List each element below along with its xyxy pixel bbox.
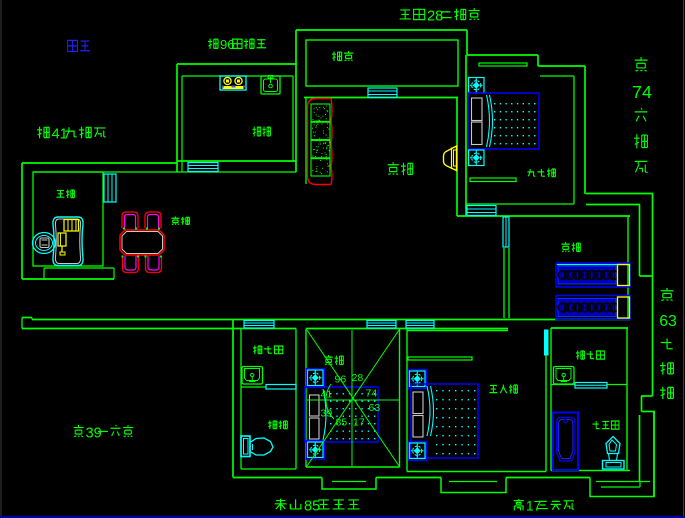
svg-text:63: 63	[659, 313, 677, 330]
svg-text:74: 74	[366, 388, 378, 400]
svg-text:17: 17	[353, 417, 365, 429]
svg-text:85: 85	[304, 498, 320, 514]
svg-text:41: 41	[52, 126, 68, 142]
svg-text:96: 96	[335, 374, 347, 386]
svg-text:41: 41	[321, 389, 333, 401]
svg-text:39: 39	[86, 425, 102, 441]
svg-text:63: 63	[369, 402, 381, 414]
svg-text:17: 17	[526, 498, 541, 513]
svg-text:28: 28	[427, 8, 443, 24]
svg-text:85: 85	[336, 417, 348, 429]
svg-text:28: 28	[352, 372, 364, 384]
svg-text:74: 74	[632, 82, 652, 102]
svg-text:39: 39	[321, 408, 333, 420]
